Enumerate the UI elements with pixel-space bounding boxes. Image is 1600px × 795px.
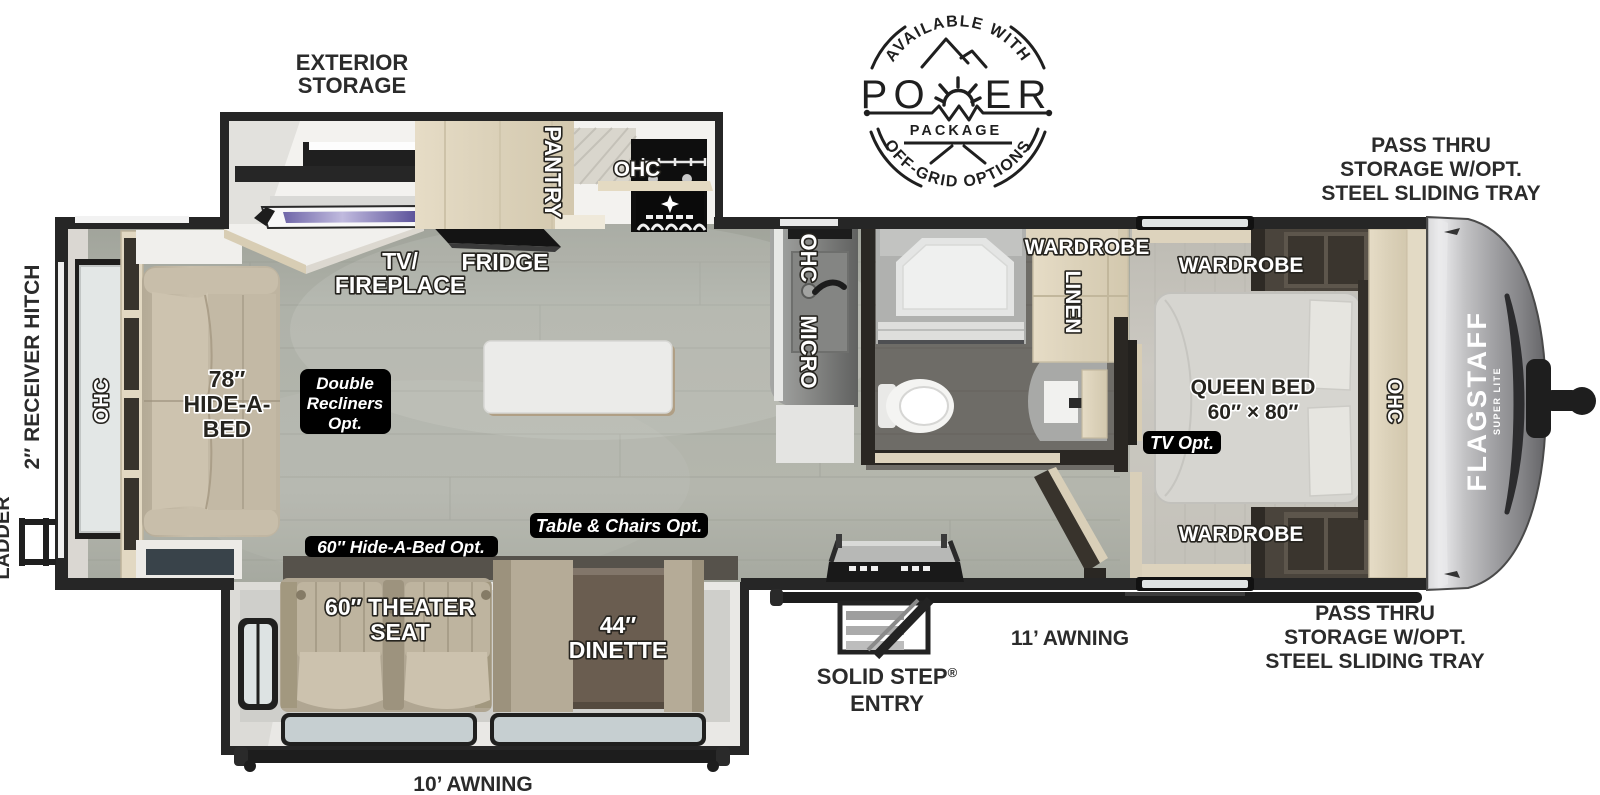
svg-text:SOLID STEP®: SOLID STEP®: [817, 664, 958, 689]
svg-text:LINEN: LINEN: [1061, 271, 1084, 334]
svg-text:EXTERIOR: EXTERIOR: [296, 50, 409, 75]
svg-text:OHC: OHC: [91, 379, 113, 423]
svg-text:STEEL SLIDING TRAY: STEEL SLIDING TRAY: [1321, 182, 1540, 205]
svg-text:P: P: [861, 73, 888, 117]
svg-text:PANTRY: PANTRY: [540, 126, 566, 218]
svg-text:E: E: [985, 73, 1012, 117]
svg-text:SEAT: SEAT: [370, 619, 430, 645]
svg-text:TV Opt.: TV Opt.: [1150, 433, 1214, 453]
svg-text:HIDE-A-: HIDE-A-: [184, 391, 271, 417]
svg-text:ENTRY: ENTRY: [850, 691, 924, 716]
svg-text:PACKAGE: PACKAGE: [910, 123, 1002, 139]
svg-text:O: O: [893, 73, 924, 117]
svg-text:Recliners: Recliners: [307, 394, 384, 413]
svg-text:LADDER: LADDER: [0, 496, 14, 580]
svg-text:Double: Double: [316, 374, 374, 393]
svg-text:STORAGE W/OPT.: STORAGE W/OPT.: [1284, 626, 1466, 649]
svg-text:Opt.: Opt.: [328, 414, 362, 433]
svg-text:FIREPLACE: FIREPLACE: [335, 272, 465, 298]
svg-text:Table & Chairs Opt.: Table & Chairs Opt.: [536, 516, 702, 536]
svg-text:STEEL SLIDING TRAY: STEEL SLIDING TRAY: [1265, 650, 1484, 673]
svg-text:STORAGE: STORAGE: [298, 73, 406, 98]
svg-text:WARDROBE: WARDROBE: [1179, 254, 1304, 277]
svg-text:60″ Hide-A-Bed Opt.: 60″ Hide-A-Bed Opt.: [317, 537, 485, 557]
svg-text:2″ RECEIVER HITCH: 2″ RECEIVER HITCH: [21, 265, 44, 470]
svg-text:44″: 44″: [600, 612, 637, 638]
svg-text:MICRO: MICRO: [796, 315, 821, 388]
svg-text:SUPER LITE: SUPER LITE: [1492, 367, 1502, 435]
svg-text:WARDROBE: WARDROBE: [1179, 523, 1304, 546]
svg-text:QUEEN BED: QUEEN BED: [1191, 376, 1316, 399]
svg-text:R: R: [1018, 73, 1047, 117]
svg-text:FLAGSTAFF: FLAGSTAFF: [1462, 311, 1492, 492]
svg-text:OHC: OHC: [1383, 379, 1405, 423]
svg-text:60″ THEATER: 60″ THEATER: [325, 594, 475, 620]
svg-text:10’ AWNING: 10’ AWNING: [413, 773, 532, 795]
svg-text:FRIDGE: FRIDGE: [462, 249, 549, 275]
svg-text:WARDROBE: WARDROBE: [1025, 236, 1150, 259]
svg-text:TV/: TV/: [382, 248, 418, 274]
svg-text:STORAGE W/OPT.: STORAGE W/OPT.: [1340, 158, 1522, 181]
svg-text:60″ × 80″: 60″ × 80″: [1208, 401, 1299, 424]
svg-text:PASS THRU: PASS THRU: [1371, 134, 1491, 157]
svg-text:OHC: OHC: [614, 158, 661, 181]
svg-text:OHC: OHC: [796, 234, 821, 283]
svg-text:DINETTE: DINETTE: [569, 637, 667, 663]
svg-text:PASS THRU: PASS THRU: [1315, 602, 1435, 625]
svg-text:78″: 78″: [209, 366, 246, 392]
svg-text:11’ AWNING: 11’ AWNING: [1011, 627, 1129, 650]
svg-text:BED: BED: [203, 416, 252, 442]
